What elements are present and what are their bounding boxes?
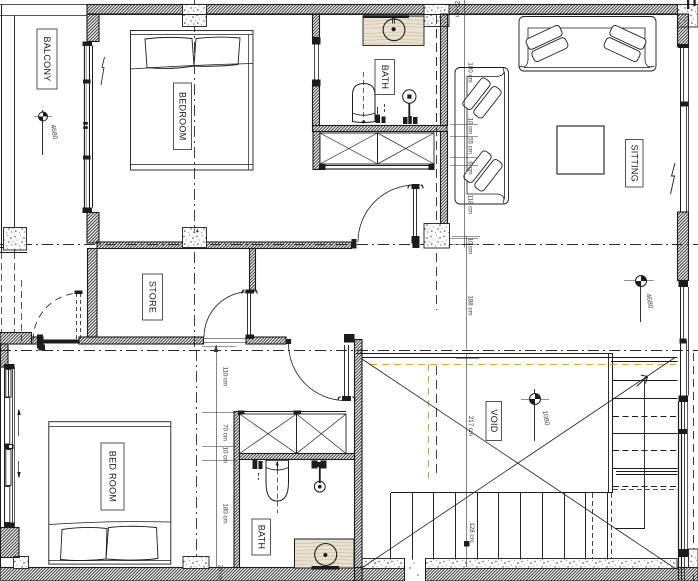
svg-text:128 cm: 128 cm: [468, 522, 475, 542]
svg-text:10 cm: 10 cm: [467, 118, 474, 135]
svg-text:STORE: STORE: [148, 281, 158, 313]
svg-text:VOID: VOID: [489, 409, 499, 432]
svg-text:BEDROOM: BEDROOM: [178, 92, 188, 141]
svg-text:10 cm: 10 cm: [467, 238, 474, 255]
svg-text:6 cm: 6 cm: [467, 161, 474, 174]
svg-text:188 cm: 188 cm: [467, 295, 474, 315]
svg-text:BALCONY: BALCONY: [42, 36, 52, 81]
svg-text:118 cm: 118 cm: [467, 195, 474, 215]
svg-text:BED ROOM: BED ROOM: [108, 451, 118, 502]
svg-text:70 cm: 70 cm: [222, 424, 229, 441]
svg-text:180 cm: 180 cm: [222, 503, 229, 523]
svg-text:20 cm: 20 cm: [454, 1, 461, 18]
svg-text:217 cm: 217 cm: [467, 416, 474, 436]
svg-text:10 cm: 10 cm: [222, 447, 229, 464]
svg-text:20 cm: 20 cm: [217, 565, 224, 581]
svg-text:55 cm: 55 cm: [467, 137, 474, 154]
svg-text:110 cm: 110 cm: [222, 367, 229, 387]
svg-text:SITTING: SITTING: [629, 144, 639, 182]
svg-text:180 cm: 180 cm: [467, 62, 474, 82]
svg-text:BATH: BATH: [256, 525, 266, 550]
svg-text:14: 14: [193, 229, 199, 235]
svg-text:BATH: BATH: [380, 65, 390, 90]
